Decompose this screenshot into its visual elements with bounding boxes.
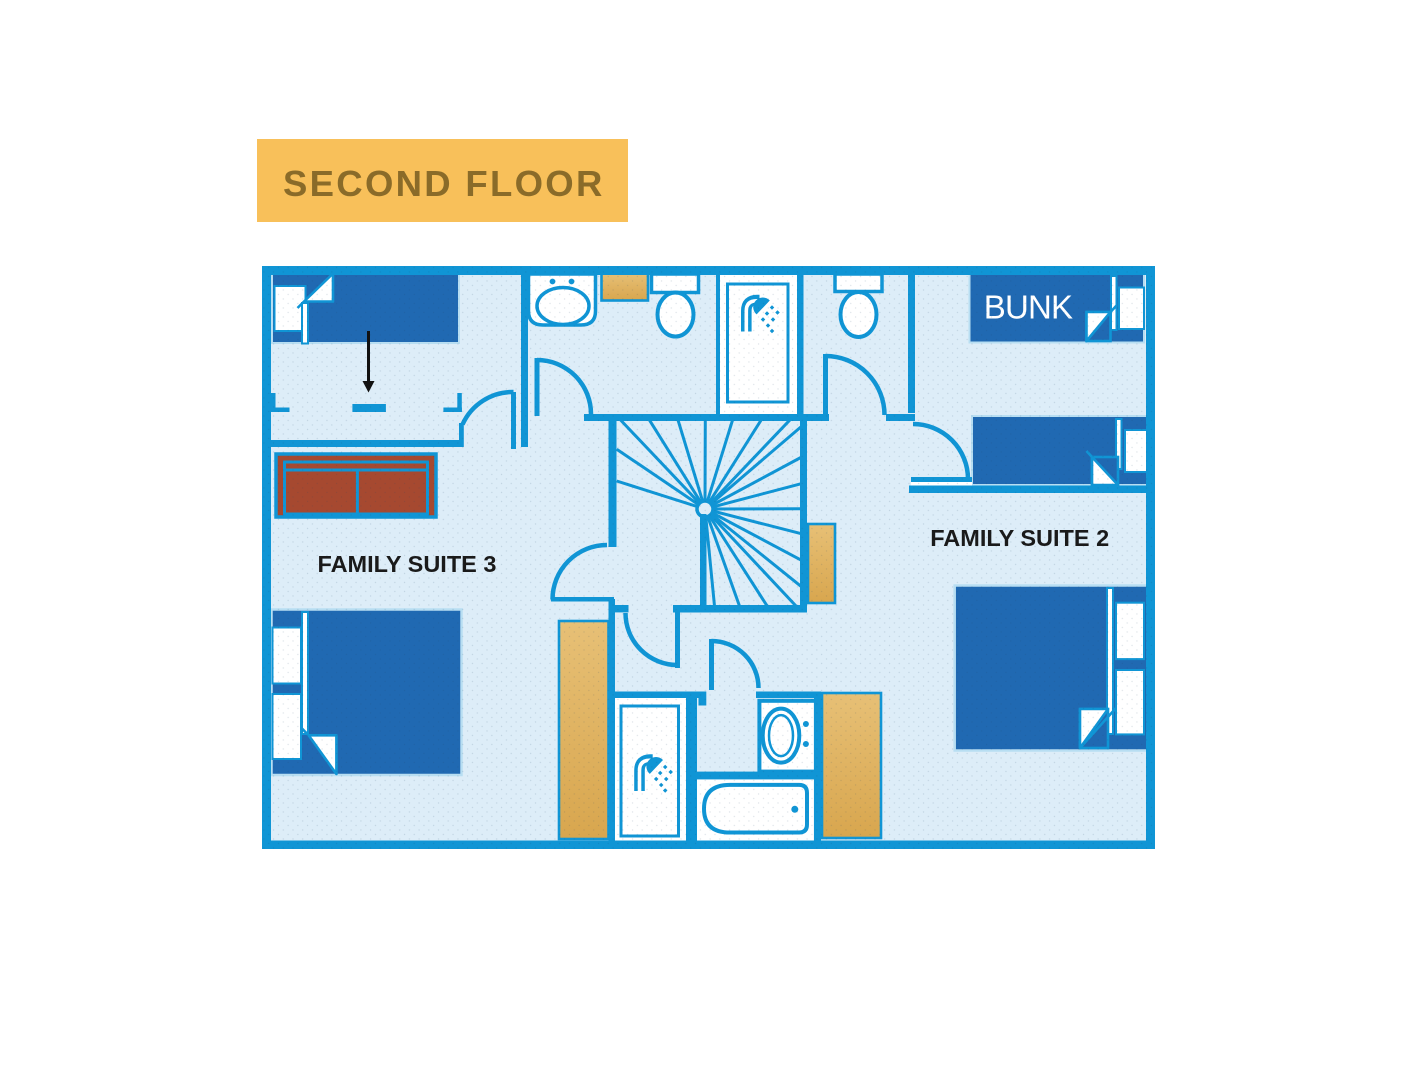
svg-text:SECOND FLOOR: SECOND FLOOR xyxy=(283,163,605,204)
